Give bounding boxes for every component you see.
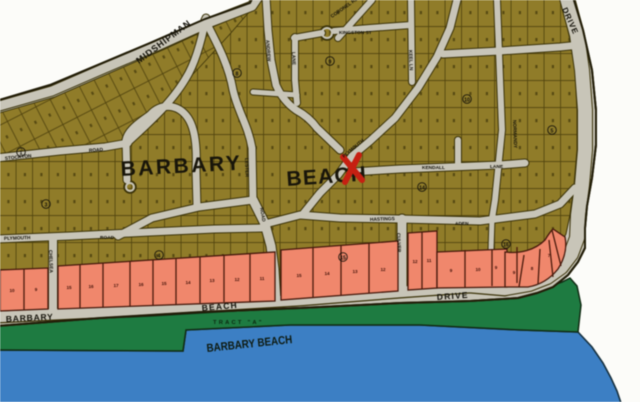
svg-text:NORMANDY: NORMANDY (511, 120, 518, 149)
svg-text:8: 8 (531, 266, 534, 271)
svg-text:TRACT "A": TRACT "A" (213, 320, 264, 326)
svg-text:LANE: LANE (490, 164, 504, 170)
svg-text:KENDALL: KENDALL (422, 165, 445, 171)
svg-text:HASTINGS: HASTINGS (370, 216, 396, 223)
svg-text:ROAD: ROAD (89, 147, 104, 154)
svg-text:CHELSEA: CHELSEA (47, 250, 54, 274)
svg-text:14: 14 (419, 186, 425, 192)
svg-text:9: 9 (329, 60, 332, 66)
svg-text:9: 9 (450, 268, 453, 273)
svg-text:9: 9 (35, 287, 38, 292)
svg-text:16: 16 (138, 282, 144, 287)
svg-text:5: 5 (551, 129, 554, 135)
svg-text:4: 4 (158, 254, 161, 260)
svg-text:11: 11 (260, 276, 265, 281)
svg-text:12: 12 (380, 267, 386, 272)
svg-text:LESTER: LESTER (243, 158, 250, 178)
svg-text:9: 9 (495, 265, 498, 270)
svg-text:8: 8 (236, 72, 239, 78)
svg-text:15: 15 (161, 281, 167, 286)
svg-text:ROAD: ROAD (100, 235, 115, 241)
svg-text:10: 10 (464, 98, 470, 104)
svg-text:15: 15 (296, 273, 302, 278)
svg-text:3: 3 (45, 203, 48, 209)
svg-text:KEEL LN: KEEL LN (407, 50, 414, 71)
svg-text:ADEN: ADEN (455, 221, 469, 227)
svg-text:1: 1 (20, 151, 23, 157)
svg-text:12: 12 (412, 259, 418, 264)
svg-text:13: 13 (209, 278, 215, 283)
svg-text:17: 17 (113, 283, 119, 288)
svg-text:LANE: LANE (290, 52, 296, 66)
svg-text:14: 14 (185, 280, 191, 285)
svg-text:16: 16 (88, 284, 94, 289)
svg-text:13: 13 (352, 269, 358, 274)
svg-text:15: 15 (340, 256, 346, 262)
svg-text:12: 12 (234, 277, 240, 282)
svg-text:10: 10 (9, 288, 15, 293)
svg-text:11: 11 (427, 258, 432, 263)
svg-text:PLYMOUTH: PLYMOUTH (4, 235, 31, 242)
svg-text:15: 15 (66, 285, 72, 290)
svg-text:16: 16 (503, 243, 509, 249)
svg-text:9: 9 (513, 270, 516, 275)
svg-text:CULVER: CULVER (395, 233, 402, 253)
svg-text:10: 10 (475, 267, 481, 272)
svg-text:14: 14 (324, 271, 330, 276)
svg-text:KINGSTON ST: KINGSTON ST (339, 30, 372, 36)
svg-text:7: 7 (548, 253, 551, 258)
